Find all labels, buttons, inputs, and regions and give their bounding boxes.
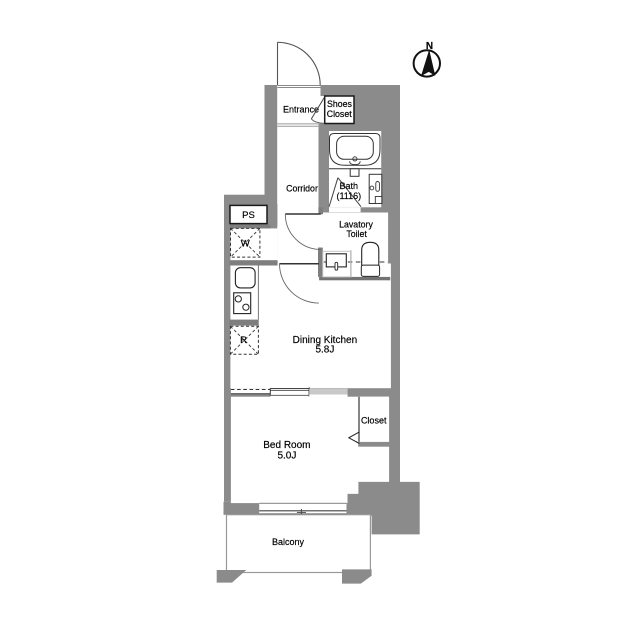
- svg-text:Closet: Closet: [327, 109, 352, 119]
- svg-text:R: R: [240, 335, 247, 346]
- svg-text:5.8J: 5.8J: [315, 344, 334, 355]
- svg-text:W: W: [241, 238, 250, 249]
- svg-text:5.0J: 5.0J: [277, 451, 296, 462]
- svg-text:Corridor: Corridor: [286, 184, 318, 194]
- svg-text:Balcony: Balcony: [272, 537, 305, 547]
- svg-text:Closet: Closet: [361, 416, 387, 426]
- svg-text:Bed Room: Bed Room: [263, 440, 310, 451]
- svg-text:Shoes: Shoes: [327, 99, 353, 109]
- svg-text:Toilet: Toilet: [346, 229, 367, 239]
- svg-text:PS: PS: [242, 210, 255, 221]
- svg-text:Bath: Bath: [340, 181, 359, 191]
- svg-text:(1116): (1116): [336, 191, 361, 201]
- svg-text:Entrance: Entrance: [283, 104, 319, 114]
- svg-text:Lavatory: Lavatory: [339, 220, 373, 230]
